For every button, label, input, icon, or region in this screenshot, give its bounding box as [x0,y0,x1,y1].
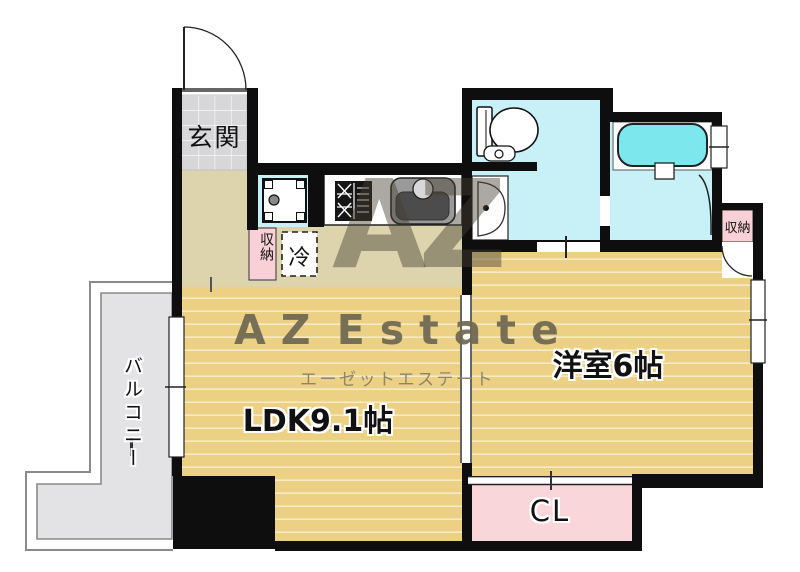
wall-western-bottom [632,474,763,488]
watermark-brand-kana: エーゼットエステート [300,365,495,390]
window-western-room [749,280,767,363]
bathroom-door-opening [600,196,610,226]
washing-machine-icon [263,179,306,222]
bathtub-step [655,163,674,179]
wall-left-lower [172,457,182,476]
wall-right-lower [753,363,763,488]
wall-laundry-stub [308,175,324,227]
wall-bath-right-b [712,166,722,252]
room-label-storage-hall: 収納 [249,232,276,262]
room-label-balcony: バルコニー [119,356,146,471]
wall-left-upper [172,88,182,317]
washroom-door-opening [537,242,600,252]
wall-entrance-right [247,88,258,230]
room-label-western-room: 洋室6帖 [508,341,708,385]
wall-bath-top [604,112,722,122]
wall-right-upper [753,203,763,280]
entrance-door-swing [184,27,246,90]
wall-closet-right [632,476,642,551]
entrance-threshold [182,88,247,92]
room-label-ldk: LDK9.1帖 [218,396,418,440]
window-bathroom [709,126,729,168]
room-label-closet: CL [510,494,590,528]
floor-plan: AZ AZ Estate エーゼットエステート 玄関 バルコニー 収納 冷 収納… [0,0,800,572]
wall-block-southwest [173,476,275,549]
room-label-fridge: 冷 [282,240,317,272]
watermark-monogram: AZ [332,158,499,292]
room-label-storage-east: 収納 [721,217,754,236]
wall-washroom-top [462,88,613,100]
room-label-genkan: 玄関 [182,118,247,154]
balcony-area [26,282,173,550]
wall-bottom [275,541,642,551]
bathtub-icon [613,122,712,179]
